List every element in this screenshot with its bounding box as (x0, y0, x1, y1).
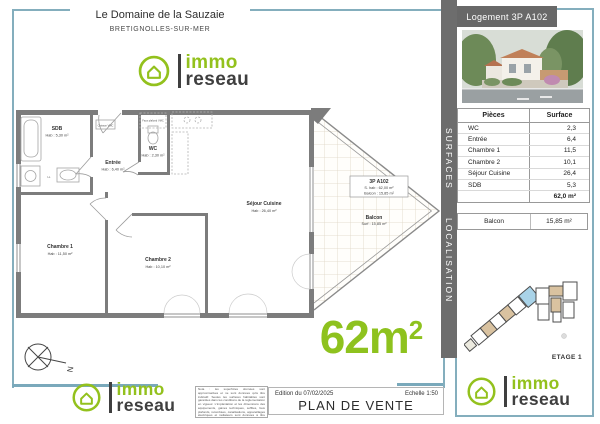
svg-text:Hab : 11,50 m²: Hab : 11,50 m² (48, 252, 74, 256)
immo-reseau-house-icon (136, 53, 172, 89)
immo-reseau-logo-footer: immoreseau (70, 377, 175, 417)
svg-text:Hab : 2,30 m²: Hab : 2,30 m² (141, 154, 165, 158)
unit-id: 3P A102 (369, 179, 388, 185)
room-wc: WC (149, 146, 158, 152)
balcon-surface-row: Balcon 15,85 m² (457, 213, 588, 230)
scale-label: Echelle 1:50 (405, 391, 438, 397)
bottom-accent-right (397, 383, 443, 386)
disclaimer-text: Nota : les superficies données sont appr… (195, 386, 268, 418)
svg-text:Hab : 6,40 m²: Hab : 6,40 m² (101, 168, 125, 172)
logo-divider (178, 54, 181, 88)
localisation-map (464, 238, 584, 352)
room-entree: Entrée (105, 160, 121, 166)
unit-header: Logement 3P A102 (457, 6, 557, 27)
immo-reseau-house-icon (70, 381, 103, 414)
compass-icon: N (16, 336, 76, 382)
windows (17, 164, 313, 317)
logo-divider (504, 376, 507, 407)
lave-linge-label: LL (48, 175, 51, 179)
svg-text:Hab : 26,40 m²: Hab : 26,40 m² (251, 209, 277, 213)
compass-north-label: N (65, 366, 75, 373)
table-row: Entrée6,4 (458, 134, 589, 145)
sidebar-localisation-label: LOCALISATION (444, 218, 454, 303)
faux-plafond-label: Faux plafond VMC (142, 119, 164, 123)
unit-hab-area: S. hab : 62,00 m² (364, 186, 394, 190)
svg-text:Surf : 15,85 m²: Surf : 15,85 m² (361, 222, 387, 226)
logo-word-reseau: reseau (186, 71, 250, 88)
balcony (311, 108, 439, 310)
interior-walls (16, 115, 208, 318)
surfaces-table-header: Pièces Surface (458, 109, 589, 123)
unit-balcon-area: Balcon : 15,85 m² (364, 192, 394, 196)
svg-text:Hab : 5,30 m²: Hab : 5,30 m² (45, 134, 69, 138)
floor-plan: 3P A102 S. hab : 62,00 m² Balcon : 15,85… (12, 92, 446, 328)
svg-text:Hab : 10,10 m²: Hab : 10,10 m² (145, 265, 171, 269)
table-row: Chambre 111,5 (458, 146, 589, 157)
room-chambre2: Chambre 2 (145, 257, 171, 263)
col-pieces: Pièces (458, 109, 530, 122)
sidebar-surfaces-label: SURFACES (444, 128, 454, 190)
immo-reseau-logo-panel: immoreseau (465, 371, 570, 411)
edition-date: Edition du 07/02/2025 (275, 391, 333, 397)
room-chambre1: Chambre 1 (47, 244, 73, 250)
project-title: Le Domaine de la Sauzaie (70, 9, 250, 21)
room-balcon: Balcon (366, 215, 383, 221)
property-photo (462, 30, 583, 103)
total-surface: 62,0 m² (530, 191, 589, 202)
logo-divider (109, 382, 112, 413)
table-total-row: 62,0 m² (458, 191, 589, 203)
doors (76, 113, 139, 237)
document-title: PLAN DE VENTE (269, 398, 443, 413)
window-swings (164, 254, 310, 313)
floor-level-label: ETAGE 1 (518, 354, 582, 361)
unit-info-box: 3P A102 S. hab : 62,00 m² Balcon : 15,85… (350, 176, 408, 197)
col-surface: Surface (530, 109, 589, 122)
table-row: Séjour Cuisine26,4 (458, 169, 589, 180)
table-row: Chambre 210,1 (458, 157, 589, 168)
toilet (148, 132, 158, 144)
total-area-badge: 62m2 (298, 314, 444, 360)
table-row: SDB5,3 (458, 180, 589, 191)
fixtures (21, 112, 212, 186)
immo-reseau-house-icon (465, 375, 498, 408)
room-sdb: SDB (52, 126, 63, 132)
washing-machine (21, 166, 40, 186)
sidebar-strip: SURFACES LOCALISATION (441, 0, 457, 358)
surfaces-table: Pièces Surface WC2,3 Entrée6,4 Chambre 1… (457, 108, 590, 203)
table-row: WC2,3 (458, 123, 589, 134)
caisson-vmc-label: Caisson VMC (98, 124, 114, 128)
project-city: BRETIGNOLLES-SUR-MER (70, 26, 250, 33)
room-sejour: Séjour Cuisine (246, 201, 281, 207)
plan-de-vente-sheet: Le Domaine de la Sauzaie BRETIGNOLLES-SU… (0, 0, 600, 424)
immo-reseau-logo: immoreseau (136, 50, 249, 92)
footer-box: Edition du 07/02/2025 Echelle 1:50 PLAN … (268, 387, 444, 415)
title-block: Le Domaine de la Sauzaie BRETIGNOLLES-SU… (70, 0, 250, 45)
